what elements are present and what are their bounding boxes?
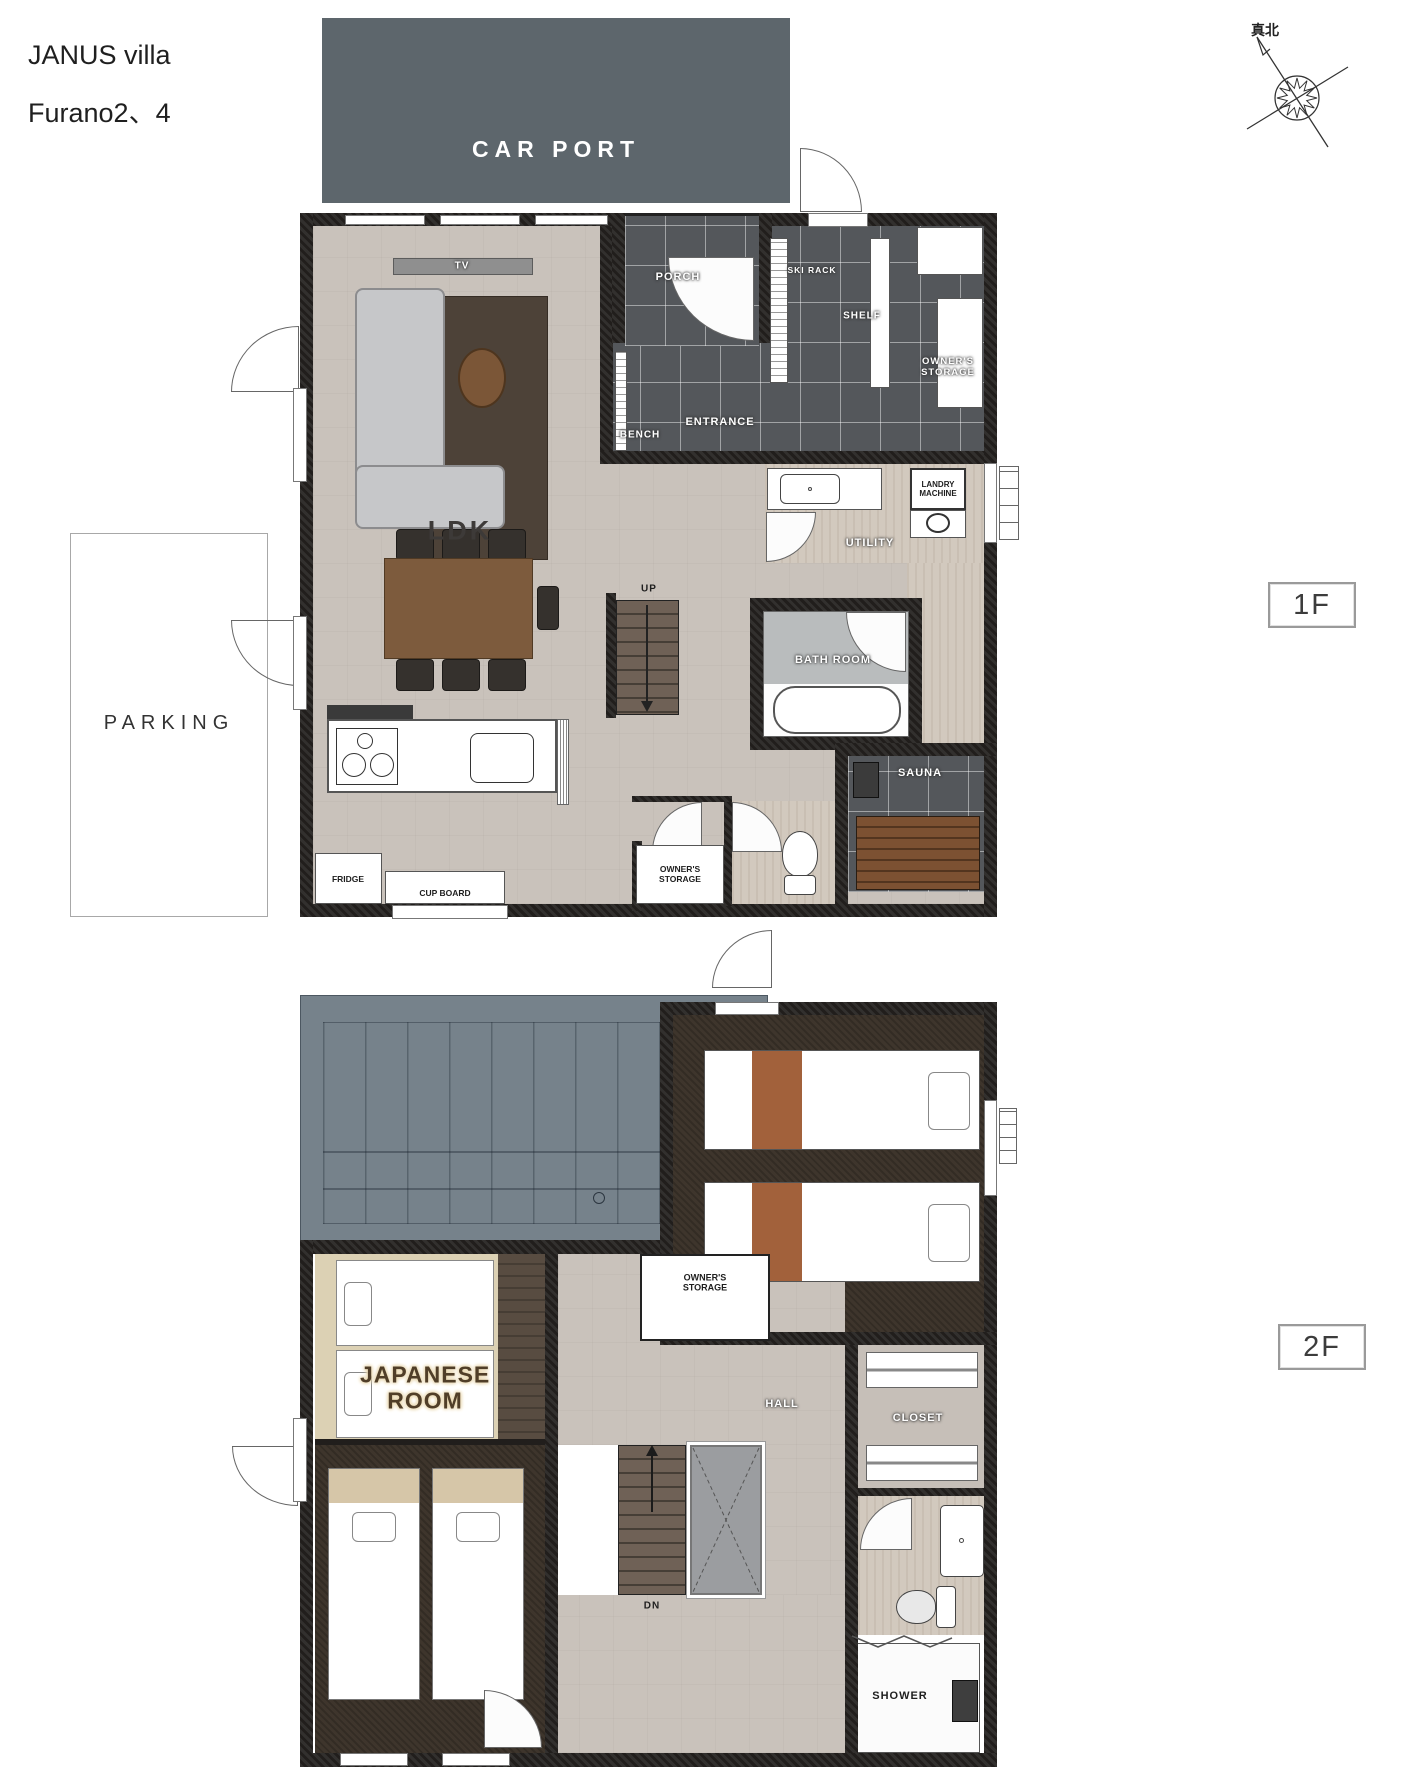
closet-rail	[866, 1352, 978, 1388]
hall-label: HALL	[765, 1398, 798, 1410]
terrace-door	[293, 1418, 307, 1502]
window	[440, 215, 520, 225]
shower-unit	[952, 1680, 978, 1722]
wall	[845, 1332, 858, 1753]
sauna-stove	[853, 762, 879, 798]
front-door-sill	[808, 213, 868, 227]
bench-label: BENCH	[620, 430, 661, 441]
window	[340, 1753, 408, 1766]
bathtub	[773, 686, 901, 734]
terrace-door	[293, 388, 307, 482]
dining-bench	[537, 586, 559, 630]
pillow	[352, 1512, 396, 1542]
floor1-badge: 1F	[1268, 582, 1356, 628]
owners-storage-top-shelf	[917, 227, 983, 275]
wall	[300, 1240, 313, 1767]
terrace-door	[293, 616, 307, 710]
floor2-plan: OWNER'S STORAGE JAPANESE ROOM DN HALL CL…	[300, 990, 997, 1767]
kitchen-hood	[327, 705, 413, 719]
owners-storage-top-shelf	[937, 298, 983, 408]
wall	[315, 1439, 545, 1445]
floor1-badge-text: 1F	[1293, 589, 1331, 622]
dining-chair	[396, 659, 434, 691]
window-sill	[392, 905, 508, 919]
compass-label: 真北	[1251, 22, 1279, 39]
dining-table	[384, 558, 533, 659]
window	[345, 215, 425, 225]
title-line1: JANUS villa	[28, 40, 171, 71]
shower-door-fold	[850, 1634, 954, 1650]
stairs-arrow-head	[641, 701, 653, 712]
door-arc	[231, 326, 299, 392]
hall-floor	[545, 1595, 845, 1753]
bed-head	[433, 1469, 523, 1503]
window	[984, 463, 997, 543]
closet-rail	[866, 1445, 978, 1481]
round-table	[458, 348, 506, 408]
title-line2: Furano2、4	[28, 91, 171, 130]
cooktop-burner	[357, 733, 373, 749]
entrance-label: ENTRANCE	[685, 416, 754, 428]
japanese-room-wood	[498, 1254, 545, 1445]
ski-rack-label: SKI RACK	[787, 265, 836, 275]
stairs-arrow-head	[646, 1445, 658, 1456]
ski-rack	[770, 238, 788, 383]
shelf-label: SHELF	[843, 311, 881, 322]
sauna-bench	[856, 816, 980, 890]
fridge-label: FRIDGE	[332, 874, 364, 884]
window	[984, 1100, 997, 1196]
cup-board-label: CUP BOARD	[419, 888, 470, 898]
owners-storage-2f-label: OWNER'S STORAGE	[670, 1273, 740, 1294]
wall	[835, 743, 848, 917]
door-arc	[232, 1446, 298, 1506]
tv-label: TV	[455, 261, 470, 272]
up-label: UP	[641, 584, 657, 595]
landry-machine-label: LANDRY MACHINE	[911, 480, 965, 498]
carport-label: CAR PORT	[322, 136, 790, 163]
wall	[300, 213, 313, 917]
vanity-drain	[959, 1538, 964, 1543]
shower-label: SHOWER	[872, 1690, 928, 1702]
wall	[600, 451, 984, 464]
owners-storage-top-label: OWNER'S STORAGE	[909, 357, 987, 379]
closet-label: CLOSET	[893, 1412, 944, 1424]
window	[442, 1753, 510, 1766]
window	[535, 215, 608, 225]
owners-storage-2f	[640, 1254, 770, 1341]
pillow	[344, 1282, 372, 1326]
door-arc	[800, 148, 862, 212]
dining-chair	[488, 659, 526, 691]
kitchen-sink	[470, 733, 534, 783]
sofa	[355, 288, 445, 478]
wall	[724, 796, 732, 906]
bed-head	[329, 1469, 419, 1503]
bath-room-label: BATH ROOM	[795, 654, 871, 666]
wall	[545, 1254, 558, 1753]
parking-label: PARKING	[71, 712, 267, 735]
wall	[612, 213, 625, 343]
ldk-label: LDK	[428, 516, 493, 547]
japanese-room-label: JAPANESE ROOM	[360, 1362, 490, 1415]
floor2-badge-text: 2F	[1303, 1331, 1341, 1364]
washing-machine-drum	[926, 513, 950, 533]
floor2-badge: 2F	[1278, 1324, 1366, 1370]
hall-floor	[762, 1445, 845, 1595]
utility-label: UTILITY	[846, 537, 895, 549]
parking-area: PARKING	[70, 533, 268, 917]
stairs-arrow	[646, 605, 648, 705]
pillow	[456, 1512, 500, 1542]
washbasin-drain	[808, 487, 812, 491]
wall	[632, 796, 732, 802]
toilet-tank	[936, 1586, 956, 1628]
exterior-unit	[999, 1108, 1017, 1164]
cooktop-burner	[370, 753, 394, 777]
roof-vent	[593, 1192, 605, 1204]
toilet-tank	[784, 875, 816, 895]
door-sill	[715, 1002, 779, 1015]
compass-icon: 真北	[1225, 14, 1365, 164]
floor1-plan: PORCH TV LDK BENCH ENTRANCE SKI RACK SHE…	[300, 213, 997, 917]
porch-label: PORCH	[656, 271, 701, 283]
exterior-unit	[999, 466, 1019, 540]
dn-label: DN	[644, 1601, 660, 1612]
carport-area: CAR PORT	[322, 18, 790, 203]
sauna-label: SAUNA	[898, 767, 942, 779]
page-title: JANUS villa Furano2、4	[28, 40, 171, 130]
bed-runner	[752, 1051, 802, 1149]
wall	[984, 213, 997, 917]
pillow	[928, 1204, 970, 1262]
wall	[858, 1488, 984, 1496]
dining-chair	[488, 529, 526, 561]
wall	[835, 743, 997, 756]
counter-edge	[557, 719, 569, 805]
wall	[606, 593, 616, 718]
dining-chair	[442, 659, 480, 691]
toilet	[896, 1590, 936, 1624]
stairs-arrow	[651, 1452, 653, 1512]
wall	[660, 1002, 997, 1015]
cooktop-burner	[342, 753, 366, 777]
owners-storage-bottom-label: OWNER'S STORAGE	[649, 865, 711, 885]
stair-void-x	[690, 1445, 762, 1595]
pillow	[928, 1072, 970, 1130]
door-arc	[712, 930, 772, 988]
floorplan-page: JANUS villa Furano2、4 CAR PORT 真北 PARKIN…	[0, 0, 1421, 1786]
toilet	[782, 831, 818, 877]
